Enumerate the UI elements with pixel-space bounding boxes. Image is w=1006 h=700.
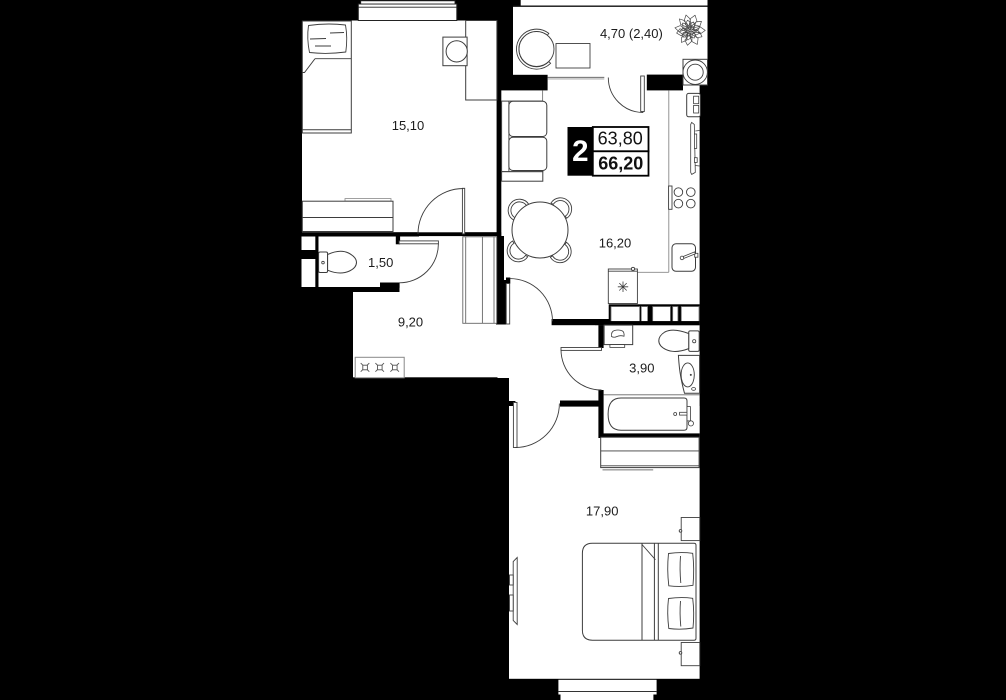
svg-text:66,20: 66,20	[598, 153, 643, 173]
svg-text:3,90: 3,90	[629, 360, 654, 375]
svg-text:16,20: 16,20	[599, 236, 632, 251]
svg-text:15,10: 15,10	[392, 118, 425, 133]
svg-text:63,80: 63,80	[598, 129, 643, 149]
svg-text:1,50: 1,50	[368, 255, 393, 270]
svg-text:2: 2	[572, 135, 588, 168]
svg-text:4,70 (2,40): 4,70 (2,40)	[600, 26, 663, 41]
svg-text:9,20: 9,20	[398, 315, 423, 330]
svg-text:17,90: 17,90	[586, 503, 619, 518]
